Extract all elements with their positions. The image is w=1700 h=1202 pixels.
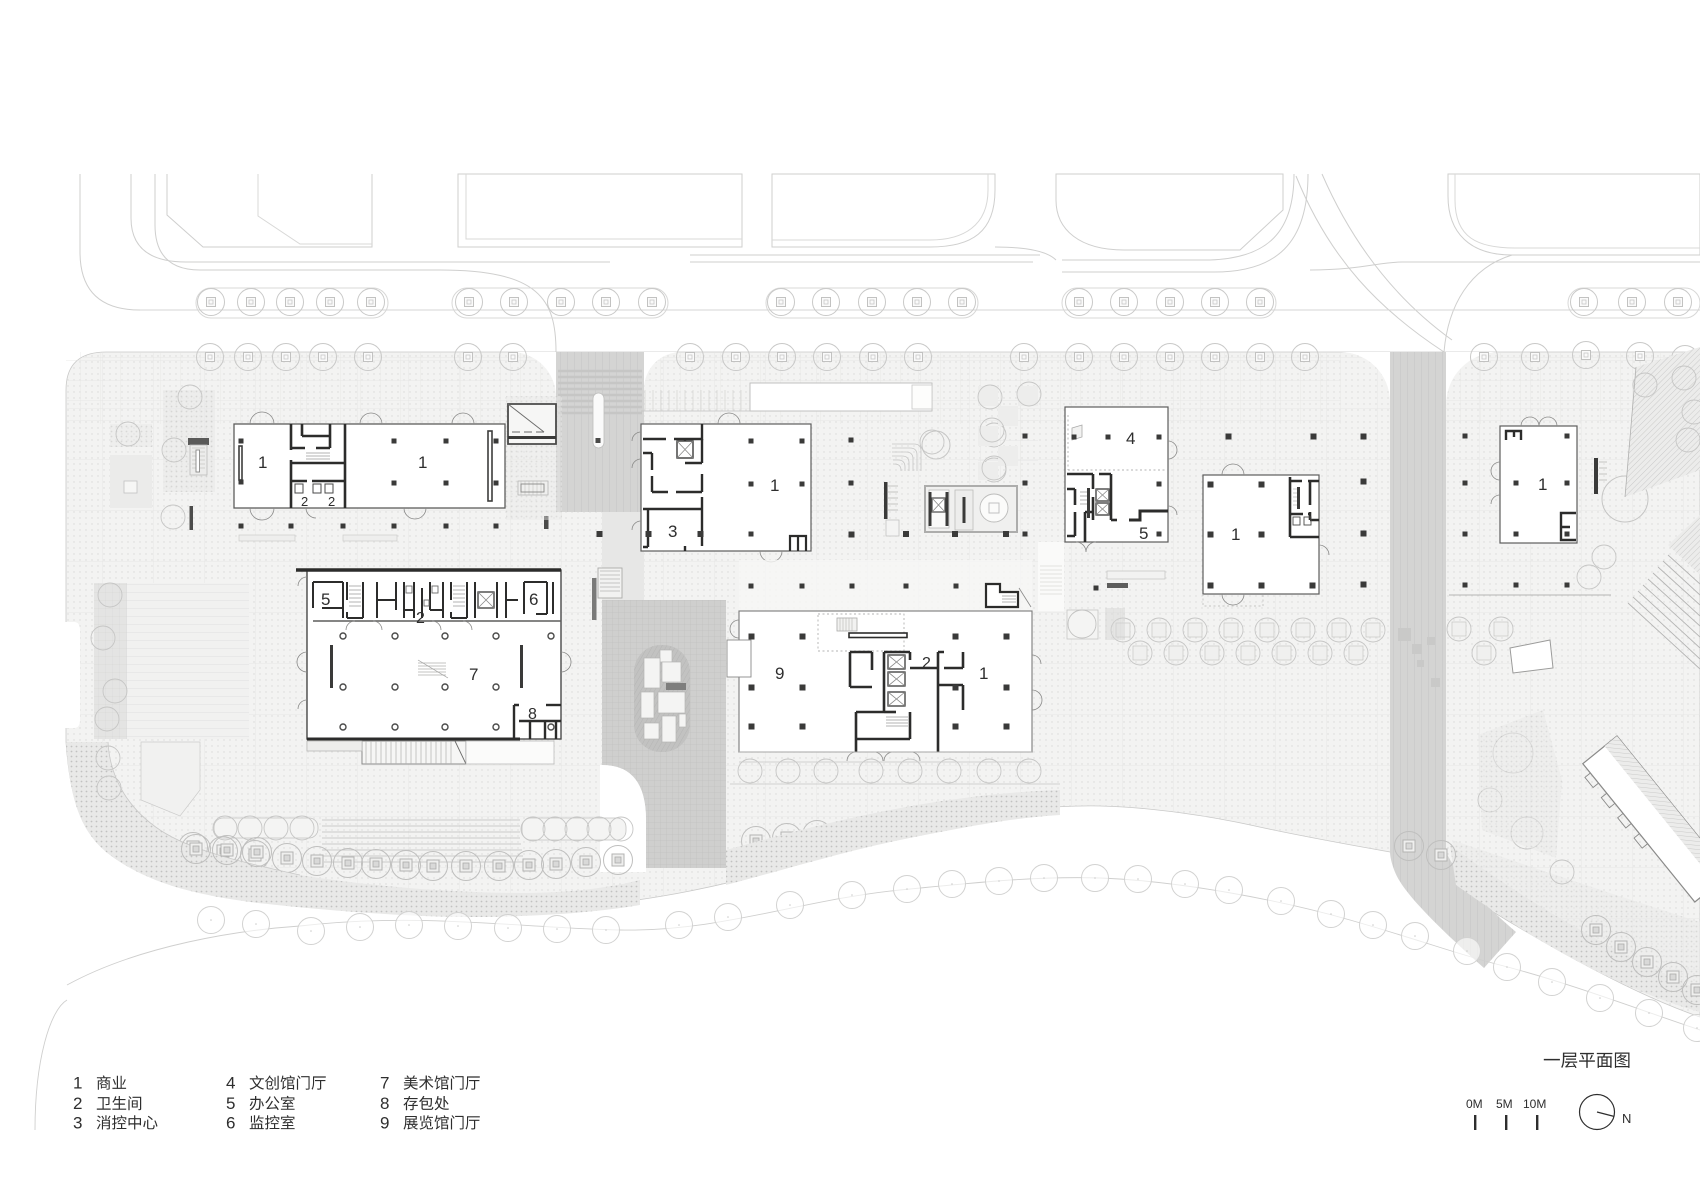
svg-text:2: 2 xyxy=(301,494,308,509)
svg-text:3: 3 xyxy=(73,1113,82,1132)
svg-text:4: 4 xyxy=(226,1074,235,1093)
svg-text:2: 2 xyxy=(922,655,931,672)
svg-text:5: 5 xyxy=(321,590,330,609)
svg-text:9: 9 xyxy=(775,664,784,683)
svg-text:6: 6 xyxy=(529,590,538,609)
svg-text:1: 1 xyxy=(1231,525,1240,544)
svg-text:3: 3 xyxy=(668,522,677,541)
svg-text:0M: 0M xyxy=(1466,1097,1483,1111)
svg-text:5M: 5M xyxy=(1496,1097,1513,1111)
svg-text:7: 7 xyxy=(469,665,478,684)
svg-text:2: 2 xyxy=(416,610,425,627)
svg-text:1: 1 xyxy=(979,664,988,683)
svg-text:1: 1 xyxy=(418,453,427,472)
svg-text:4: 4 xyxy=(1126,429,1135,448)
svg-text:1: 1 xyxy=(1538,475,1547,494)
svg-text:N: N xyxy=(1622,1111,1631,1126)
svg-text:5: 5 xyxy=(1139,524,1148,543)
svg-text:5: 5 xyxy=(226,1094,235,1113)
svg-text:10M: 10M xyxy=(1523,1097,1546,1111)
svg-text:1: 1 xyxy=(770,476,779,495)
svg-text:1: 1 xyxy=(73,1074,82,1093)
svg-text:9: 9 xyxy=(380,1113,389,1132)
svg-text:8: 8 xyxy=(380,1094,389,1113)
svg-text:1: 1 xyxy=(258,453,267,472)
svg-text:2: 2 xyxy=(73,1094,82,1113)
svg-text:7: 7 xyxy=(380,1074,389,1093)
svg-text:8: 8 xyxy=(528,706,537,723)
svg-text:2: 2 xyxy=(328,494,335,509)
svg-text:6: 6 xyxy=(226,1113,235,1132)
